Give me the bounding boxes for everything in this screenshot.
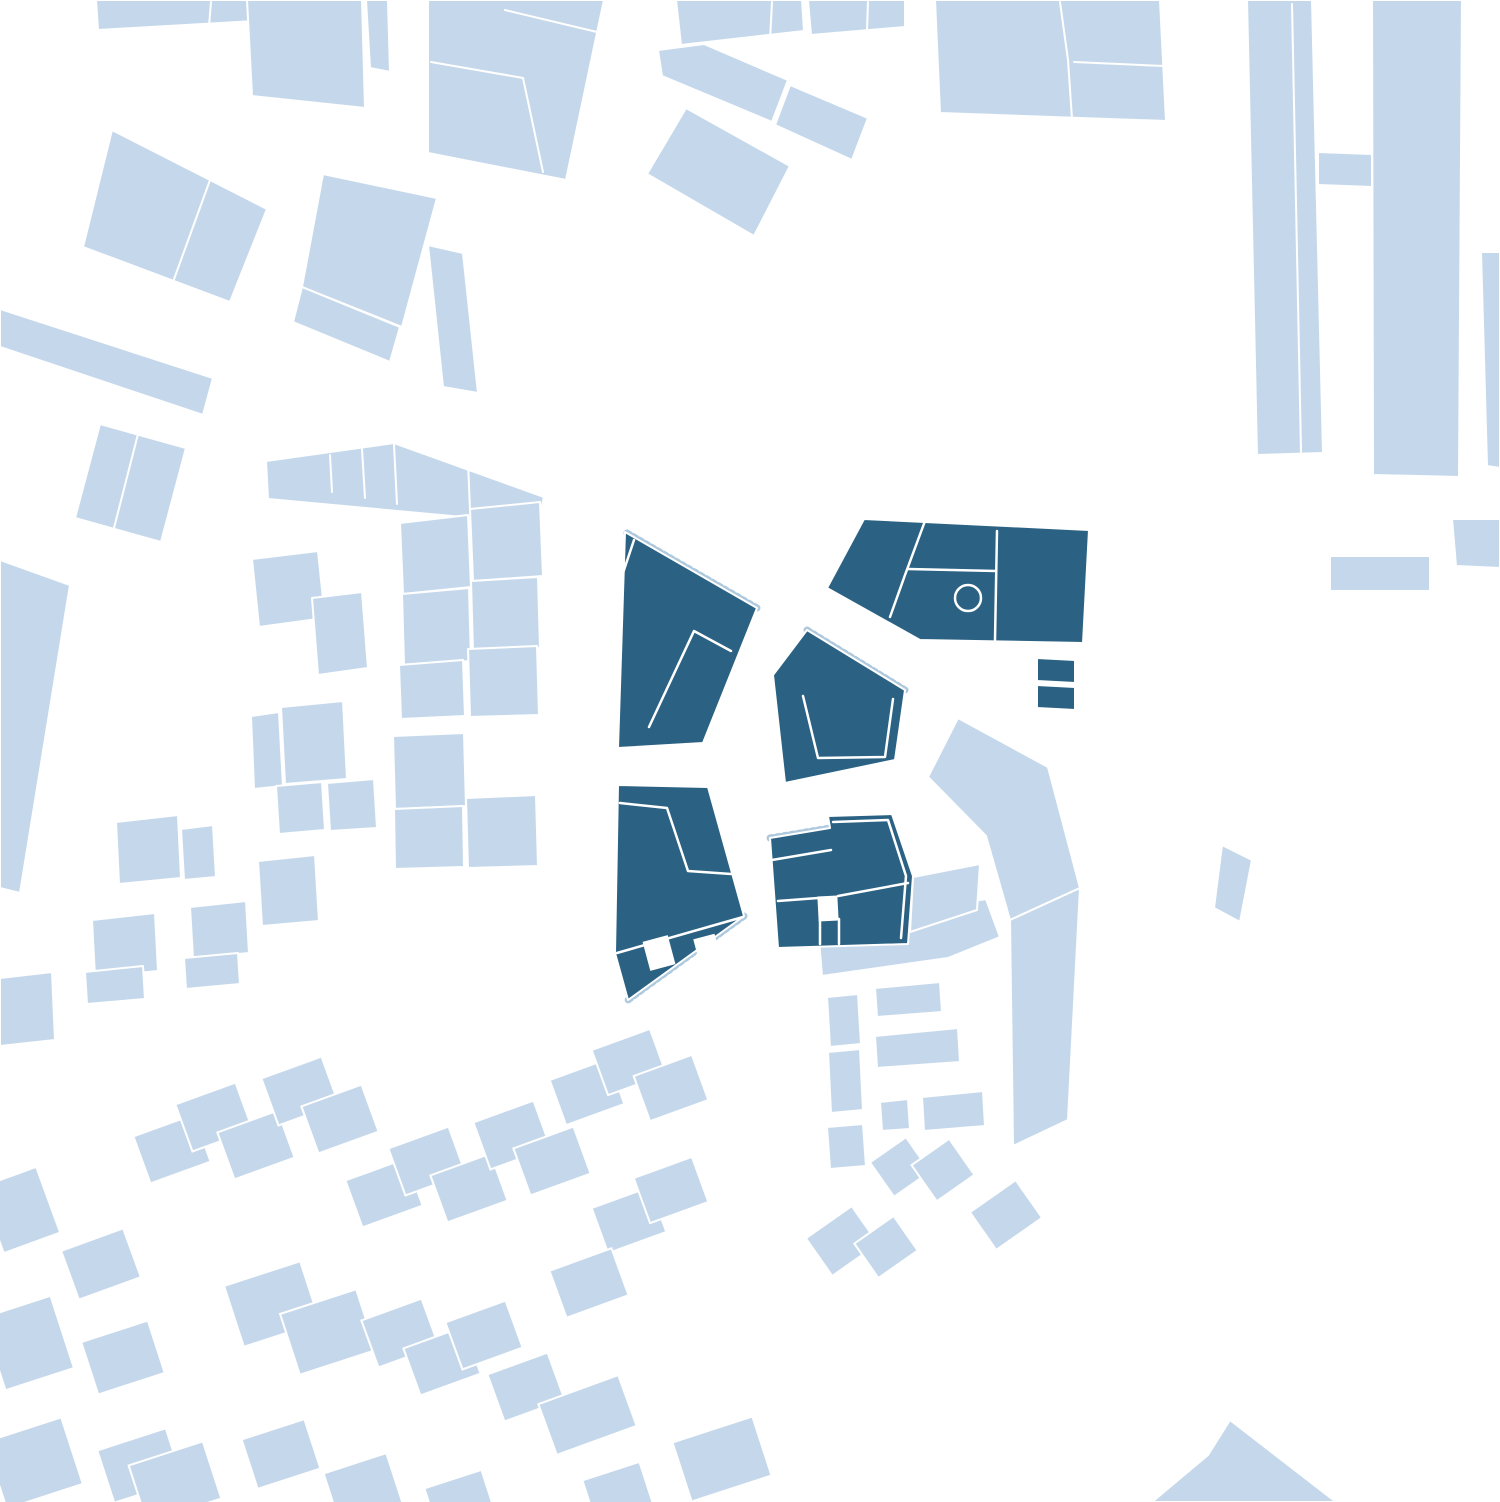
context-houses-item (424, 1470, 495, 1502)
edge-wedge-west (0, 560, 70, 893)
context-houses-item (61, 1228, 141, 1299)
context-houses (0, 1029, 1042, 1502)
site-plan (0, 0, 1500, 1502)
house-w4 (190, 901, 249, 958)
context-houses-item (912, 1139, 975, 1201)
parcel-sq-7 (393, 733, 466, 809)
site-block-e (827, 519, 1089, 643)
top-big (247, 0, 365, 108)
house-p4 (281, 701, 347, 784)
small-east-1 (1330, 556, 1430, 591)
edge-square-west (0, 972, 55, 1046)
site-plan-svg (0, 0, 1500, 1502)
block-west-2 (75, 424, 186, 542)
site-notches-item (817, 895, 838, 921)
context-houses-item (324, 1453, 403, 1502)
parcel-sq-8 (394, 806, 464, 869)
row-rect-3 (922, 1091, 985, 1131)
slab-2 (1372, 0, 1462, 477)
row-rect-2 (875, 1028, 960, 1068)
block-n-quad (647, 108, 790, 236)
top-strip-3 (808, 0, 905, 35)
edge-sliver-east (1481, 252, 1500, 468)
lone-piece-east (1214, 845, 1252, 922)
parcel-sq-6 (468, 646, 539, 717)
parcel-sq-2 (470, 502, 543, 581)
context-houses-item (970, 1180, 1042, 1250)
house-w6 (184, 953, 240, 989)
site-block-c (615, 785, 744, 1000)
chevron-arm (1010, 888, 1080, 1146)
band-2 (775, 85, 868, 160)
site-block-a (618, 532, 757, 748)
col-rect-1 (827, 994, 861, 1047)
bottom-chevron (1152, 1420, 1336, 1502)
slab-1 (1247, 0, 1323, 455)
house-w2 (181, 825, 216, 880)
parcel-sq-5 (399, 660, 465, 719)
row-rect-1 (875, 982, 942, 1017)
block-ne-large (935, 0, 1166, 121)
context-houses-item (672, 1417, 771, 1502)
parcel-sq-1 (400, 515, 471, 594)
context-buildings (0, 0, 1500, 1502)
top-strip (96, 0, 258, 30)
small-rect-1 (880, 1099, 910, 1131)
house-pa (276, 782, 325, 834)
context-houses-item (81, 1321, 165, 1395)
context-houses-item (242, 1419, 321, 1489)
context-houses-item (0, 1167, 60, 1253)
small-east-2 (1452, 519, 1500, 568)
small-rect-2 (827, 1124, 866, 1169)
house-p3 (251, 712, 283, 789)
slab-2-tab (1318, 152, 1372, 187)
context-houses-item (549, 1248, 628, 1318)
context-houses-item (582, 1462, 653, 1502)
parcel-sq-3 (402, 588, 471, 665)
house-pb (327, 779, 377, 831)
parcel-sq-4 (471, 577, 540, 652)
house-w1 (116, 815, 181, 884)
context-houses-item (0, 1417, 83, 1502)
block-west-tall (428, 245, 478, 393)
top-sliver (366, 0, 390, 72)
house-pc (258, 855, 319, 926)
site-block-b (773, 630, 905, 783)
context-divider-lines-item (867, 2, 868, 30)
parcel-sq-9 (466, 795, 538, 868)
context-houses-item (0, 1296, 74, 1391)
site-small-2 (1037, 685, 1075, 710)
bar-west (0, 309, 213, 415)
house-p2 (312, 592, 368, 675)
site-notches-item (693, 934, 723, 971)
col-rect-2 (828, 1049, 863, 1113)
site-small-1 (1037, 658, 1075, 683)
band-1 (658, 44, 788, 122)
top-strip-2 (676, 0, 804, 45)
house-w5 (85, 966, 145, 1004)
